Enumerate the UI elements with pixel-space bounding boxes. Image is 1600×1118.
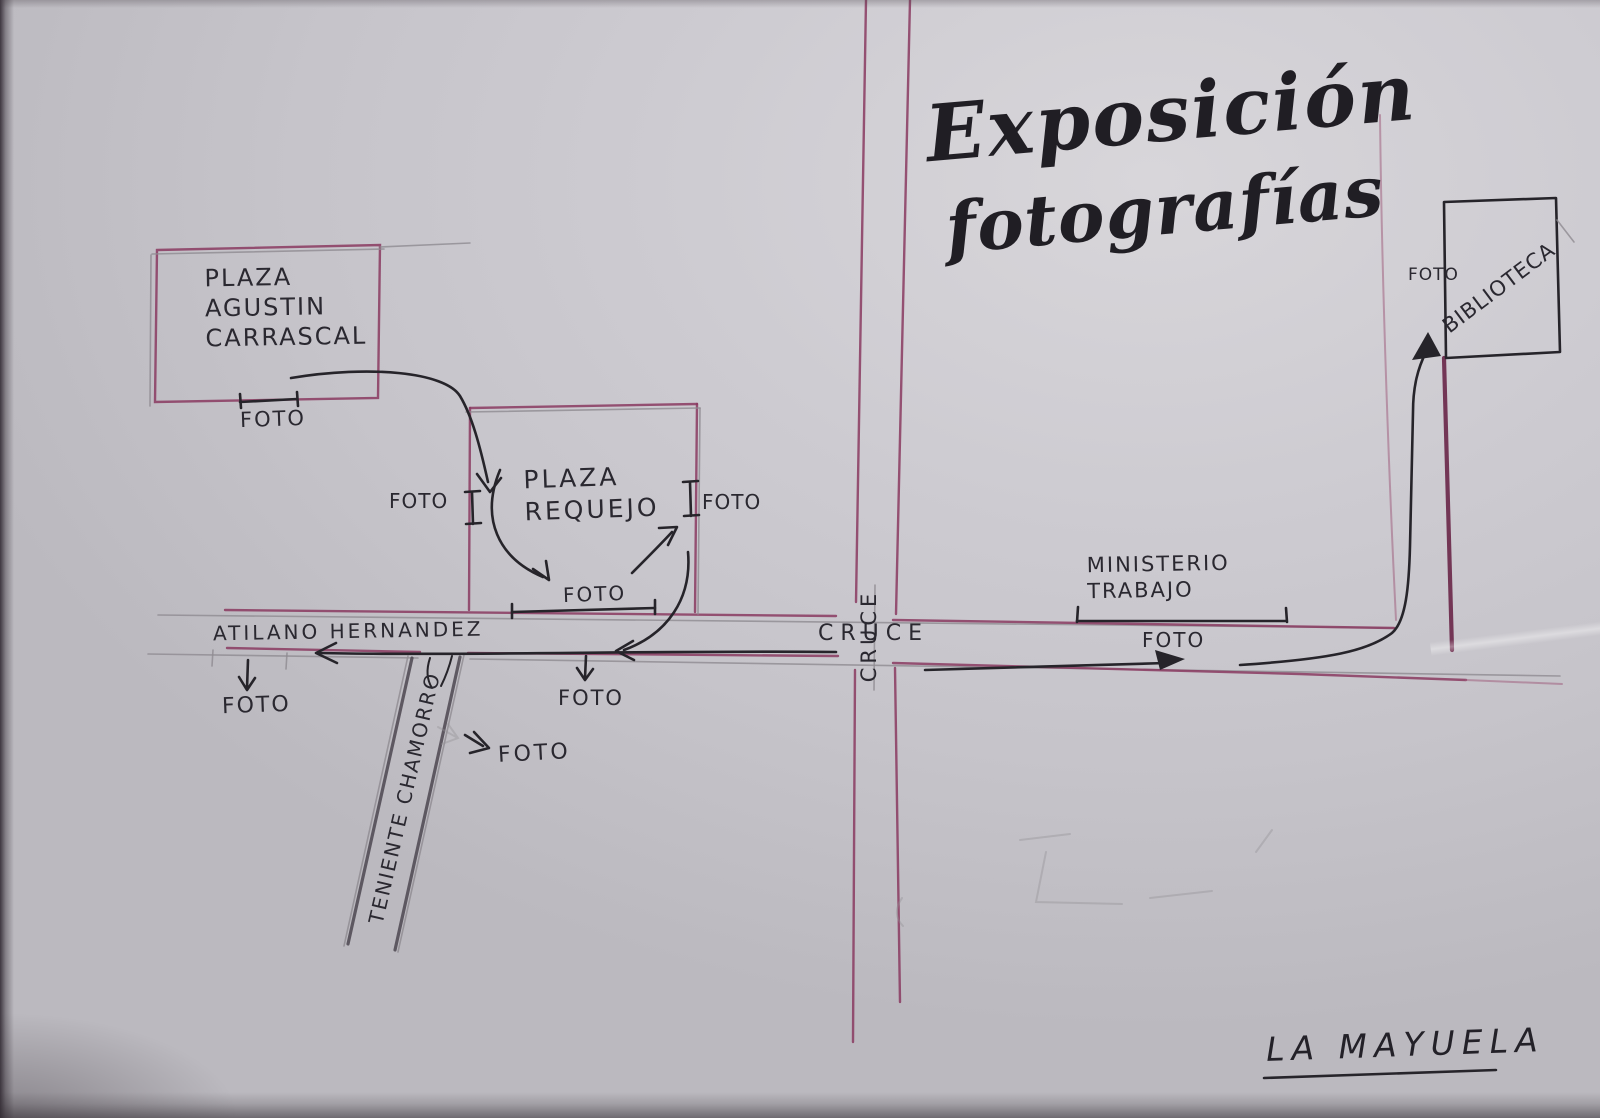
cruce-label-vertical: CRUCE xyxy=(856,590,882,683)
foto-label-requejo-left: FOTO xyxy=(389,489,448,514)
arrow-teniente-foto xyxy=(465,732,489,753)
route-arrow-to-biblioteca xyxy=(1240,352,1426,665)
arrow-carrascal-to-requejo xyxy=(291,372,488,482)
arrow-down-foto-left xyxy=(239,660,255,690)
ministerio-trabajo-label: MINISTERIO TRABAJO xyxy=(1087,550,1231,605)
foto-label-teniente: FOTO xyxy=(497,738,571,769)
foto-label-atilano-mid: FOTO xyxy=(558,685,624,711)
arrow-down-foto-mid xyxy=(577,656,593,680)
foto-label-carrascal: FOTO xyxy=(240,405,307,434)
foto-label-requejo-bottom: FOTO xyxy=(563,581,627,608)
ministerio-underline xyxy=(1077,607,1287,622)
photographed-map-sheet: Exposición fotografías PLAZA AGUSTIN CAR… xyxy=(0,0,1600,1118)
plaza-carrascal-label: PLAZA AGUSTIN CARRASCAL xyxy=(204,261,367,355)
ghost-pencil-marks xyxy=(897,830,1272,926)
foto-label-requejo-right: FOTO xyxy=(702,490,761,515)
plaza-requejo-label: PLAZA REQUEJO xyxy=(523,460,660,528)
street-atilano-label: ATILANO HERNANDEZ xyxy=(213,617,484,647)
foto-label-ministerio: FOTO xyxy=(1142,628,1205,653)
street-vertical-center xyxy=(853,0,910,1042)
signature-underline xyxy=(1264,1070,1496,1078)
foto-label-atilano-left: FOTO xyxy=(222,691,292,721)
foto-label-biblioteca: FOTO xyxy=(1408,265,1459,286)
arrow-to-requejo-right-foto xyxy=(632,532,672,573)
